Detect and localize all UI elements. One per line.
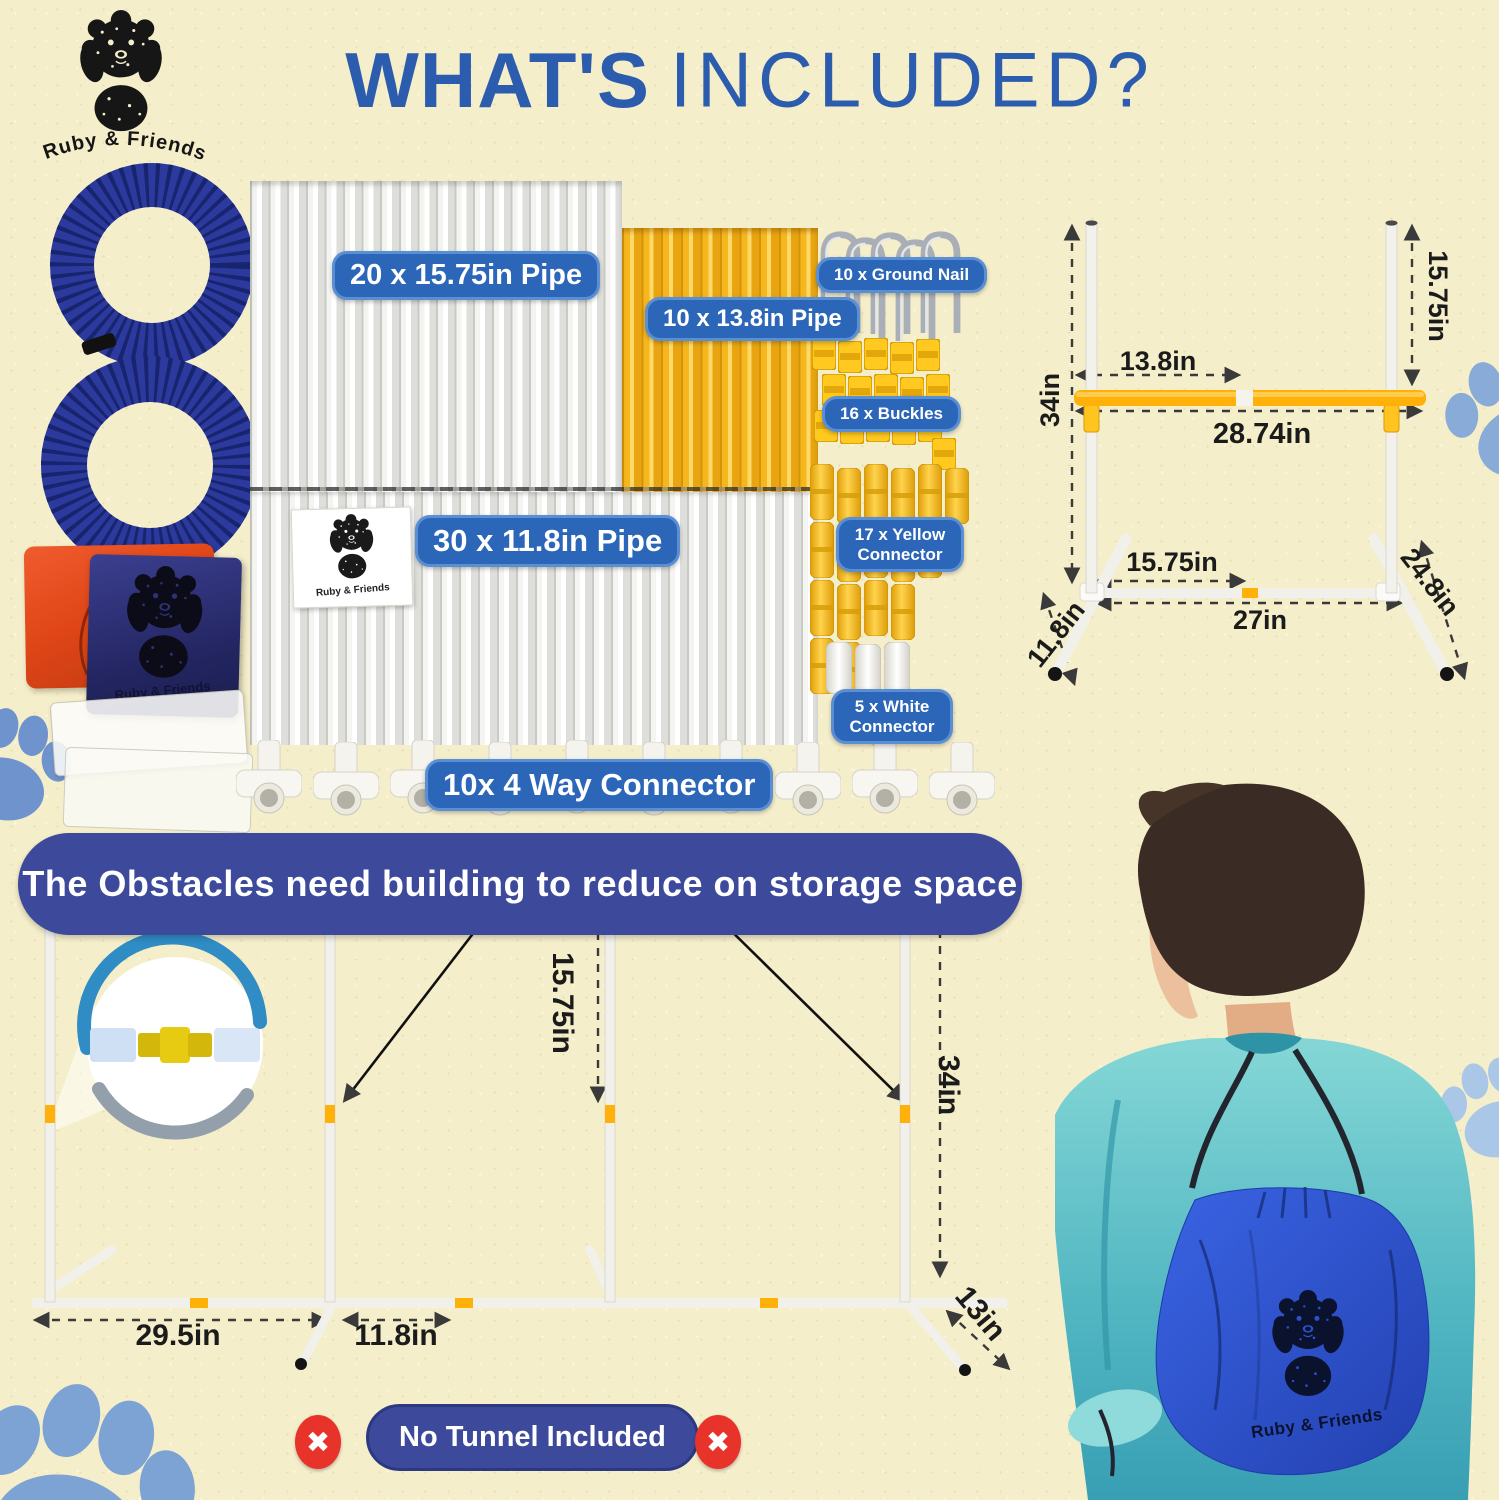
label-four-way-connector: 10x 4 Way Connector — [425, 759, 773, 811]
label-pipe-10x13: 10 x 13.8in Pipe — [645, 297, 860, 341]
packet — [63, 747, 254, 834]
card-brand-text: Ruby & Friends — [294, 580, 412, 600]
title-bold: WHAT'S — [345, 35, 650, 126]
title-light: INCLUDED? — [670, 36, 1155, 125]
x-mark-icon: ✖ — [695, 1415, 741, 1469]
hurdle-dim-28-74: 28.74in — [1177, 417, 1347, 451]
no-tunnel-banner: No Tunnel Included — [366, 1404, 699, 1471]
tunnel-coils — [30, 155, 270, 585]
label-white-connector: 5 x White Connector — [831, 689, 953, 744]
label-yellow-connector: 17 x Yellow Connector — [836, 517, 964, 572]
page-title: WHAT'S INCLUDED? — [350, 28, 1150, 132]
weave-dim-34: 34in — [930, 1015, 966, 1155]
brand-card: Ruby & Friends — [291, 506, 414, 608]
hurdle-dim-27: 27in — [1190, 603, 1330, 637]
label-pipe-20x15: 20 x 15.75in Pipe — [332, 251, 600, 300]
weave-dim-11-8: 11.8in — [326, 1318, 466, 1354]
hurdle-dim-13-8: 13.8in — [1088, 344, 1228, 378]
dog-logo-icon — [320, 513, 384, 583]
brand-logo: Ruby & Friends — [30, 10, 225, 178]
label-ground-nail: 10 x Ground Nail — [816, 257, 987, 293]
infographic-canvas: Ruby & Friends WHAT'S INCLUDED? — [0, 0, 1499, 1500]
label-pipe-30x11: 30 x 11.8in Pipe — [415, 515, 680, 567]
plastic-packets — [52, 688, 257, 836]
pipe-section-divider — [250, 487, 818, 491]
man-with-backpack: Ruby & Friends — [1000, 770, 1499, 1500]
dog-logo-icon — [108, 565, 221, 686]
storage-banner: The Obstacles need building to reduce on… — [18, 833, 1022, 935]
x-mark-icon: ✖ — [295, 1415, 341, 1469]
white-pipes-15in — [250, 181, 622, 492]
hurdle-dim-15-75-base: 15.75in — [1102, 545, 1242, 579]
weave-dim-15-75: 15.75in — [544, 933, 580, 1073]
yellow-pipes-13in — [622, 228, 818, 492]
weave-dim-29-5: 29.5in — [108, 1318, 248, 1354]
hurdle-dim-34: 34in — [1033, 330, 1067, 470]
label-buckles: 16 x Buckles — [822, 396, 961, 432]
hurdle-dim-15-75-top: 15.75in — [1421, 226, 1455, 366]
